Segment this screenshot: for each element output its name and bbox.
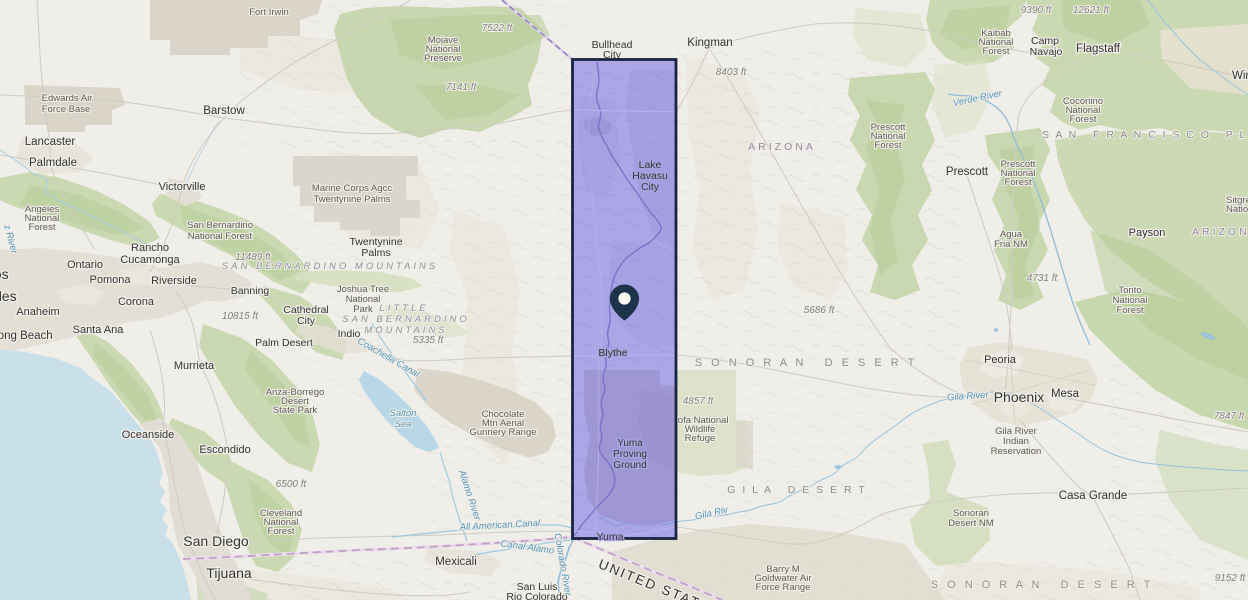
svg-text:Palms: Palms bbox=[361, 247, 390, 259]
svg-text:Refuge: Refuge bbox=[685, 433, 716, 444]
svg-text:Gunnery Range: Gunnery Range bbox=[469, 427, 536, 438]
svg-text:Barstow: Barstow bbox=[203, 105, 245, 117]
svg-text:Forest: Forest bbox=[268, 526, 295, 537]
svg-text:SAN BERNARDINO: SAN BERNARDINO bbox=[342, 314, 470, 325]
svg-text:Ground: Ground bbox=[613, 460, 646, 471]
svg-text:Long Beach: Long Beach bbox=[0, 330, 53, 342]
svg-text:Sea: Sea bbox=[395, 419, 412, 430]
svg-text:Forest: Forest bbox=[1117, 305, 1144, 316]
svg-text:Riverside: Riverside bbox=[151, 275, 197, 287]
svg-text:4857 ft: 4857 ft bbox=[683, 396, 715, 407]
svg-text:Cucamonga: Cucamonga bbox=[120, 254, 180, 266]
svg-text:12621 ft: 12621 ft bbox=[1073, 5, 1110, 16]
svg-text:Fria NM: Fria NM bbox=[994, 239, 1028, 250]
svg-text:7847 ft: 7847 ft bbox=[1214, 411, 1246, 422]
svg-text:Angeles: Angeles bbox=[0, 288, 17, 304]
svg-text:Edwards Air: Edwards Air bbox=[42, 93, 93, 104]
svg-text:Phoenix: Phoenix bbox=[994, 389, 1045, 405]
svg-text:SAN BERNARDINO MOUNTAINS: SAN BERNARDINO MOUNTAINS bbox=[222, 261, 438, 272]
svg-text:Mexicali: Mexicali bbox=[435, 556, 477, 568]
svg-text:ARIZONA: ARIZONA bbox=[748, 141, 816, 153]
svg-text:Casa Grande: Casa Grande bbox=[1059, 490, 1127, 502]
svg-text:Forest: Forest bbox=[983, 46, 1010, 57]
svg-text:Los: Los bbox=[0, 266, 9, 282]
svg-text:LITTLE: LITTLE bbox=[379, 303, 428, 314]
svg-text:Twentynine Palms: Twentynine Palms bbox=[313, 194, 390, 205]
svg-text:4731 ft: 4731 ft bbox=[1027, 273, 1059, 284]
svg-text:Ontario: Ontario bbox=[67, 259, 103, 271]
svg-text:City: City bbox=[641, 181, 660, 193]
svg-text:5686 ft: 5686 ft bbox=[804, 305, 836, 316]
svg-text:Forest: Forest bbox=[875, 140, 902, 151]
svg-text:Yuma: Yuma bbox=[617, 438, 643, 449]
svg-text:Mesa: Mesa bbox=[1051, 388, 1080, 400]
svg-text:Rancho: Rancho bbox=[131, 242, 169, 254]
svg-text:Fort Irwin: Fort Irwin bbox=[249, 7, 289, 18]
svg-text:Pomona: Pomona bbox=[90, 274, 132, 286]
svg-text:Victorville: Victorville bbox=[159, 181, 206, 193]
svg-text:ARIZONA: ARIZONA bbox=[1192, 226, 1248, 238]
svg-text:Flagstaff: Flagstaff bbox=[1076, 43, 1121, 55]
svg-text:9390 ft: 9390 ft bbox=[1021, 5, 1053, 16]
svg-text:Tijuana: Tijuana bbox=[206, 565, 252, 581]
svg-text:Force Base: Force Base bbox=[42, 104, 91, 115]
svg-text:Payson: Payson bbox=[1129, 227, 1166, 239]
svg-text:Preserve: Preserve bbox=[424, 53, 462, 64]
svg-text:Force Range: Force Range bbox=[756, 582, 811, 593]
svg-text:Palmdale: Palmdale bbox=[29, 157, 77, 169]
svg-text:S O N O R A N D E S E R T: S O N O R A N D E S E R T bbox=[931, 579, 1154, 591]
svg-text:Forest: Forest bbox=[29, 222, 56, 233]
svg-text:Lancaster: Lancaster bbox=[25, 136, 76, 148]
svg-text:City: City bbox=[297, 315, 316, 327]
svg-text:5335 ft: 5335 ft bbox=[413, 335, 445, 346]
svg-text:Santa Ana: Santa Ana bbox=[73, 324, 125, 336]
svg-text:Desert NM: Desert NM bbox=[948, 518, 993, 529]
svg-text:National Forest: National Forest bbox=[188, 231, 253, 242]
svg-text:Marine Corps Agcc: Marine Corps Agcc bbox=[312, 183, 393, 194]
svg-text:Forest: Forest bbox=[1005, 177, 1032, 188]
svg-text:Oceanside: Oceanside bbox=[122, 429, 175, 441]
svg-text:Salton: Salton bbox=[390, 408, 417, 419]
svg-text:S O N O R A N D E S E R T: S O N O R A N D E S E R T bbox=[695, 357, 918, 369]
svg-text:Rio Colorado: Rio Colorado bbox=[506, 591, 567, 600]
svg-text:S A N F R A N C I S C O P: S A N F R A N C I S C O P L A T bbox=[1042, 129, 1248, 141]
svg-text:Anaheim: Anaheim bbox=[16, 306, 59, 318]
svg-text:San Diego: San Diego bbox=[183, 533, 249, 549]
svg-text:Proving: Proving bbox=[613, 449, 647, 460]
svg-text:Nation: Nation bbox=[1226, 204, 1248, 215]
svg-text:7522 ft: 7522 ft bbox=[482, 23, 514, 34]
svg-text:Forest: Forest bbox=[1070, 114, 1097, 125]
svg-text:San Bernardino: San Bernardino bbox=[187, 220, 253, 231]
svg-text:Corona: Corona bbox=[118, 296, 155, 308]
svg-text:Yuma: Yuma bbox=[597, 531, 624, 543]
svg-text:6500 ft: 6500 ft bbox=[276, 479, 308, 490]
svg-text:8403 ft: 8403 ft bbox=[716, 67, 748, 78]
svg-text:Kingman: Kingman bbox=[687, 37, 732, 49]
svg-text:Blythe: Blythe bbox=[598, 347, 627, 359]
svg-text:Escondido: Escondido bbox=[199, 444, 250, 456]
svg-text:Banning: Banning bbox=[231, 285, 270, 297]
svg-text:Indio: Indio bbox=[338, 328, 361, 340]
svg-text:G I L A D E S E R T: G I L A D E S E R T bbox=[727, 484, 866, 496]
svg-text:Win: Win bbox=[1232, 70, 1248, 82]
svg-text:10815 ft: 10815 ft bbox=[222, 311, 259, 322]
svg-text:7141 ft: 7141 ft bbox=[446, 82, 478, 93]
svg-text:Murrieta: Murrieta bbox=[174, 360, 215, 372]
svg-text:Reservation: Reservation bbox=[991, 446, 1042, 457]
svg-text:Prescott: Prescott bbox=[946, 166, 989, 178]
svg-text:Peoria: Peoria bbox=[984, 354, 1017, 366]
svg-text:Navajo: Navajo bbox=[1030, 46, 1063, 58]
svg-text:Palm Desert: Palm Desert bbox=[255, 337, 313, 349]
svg-text:State Park: State Park bbox=[273, 405, 318, 416]
svg-text:9152 ft: 9152 ft bbox=[1215, 573, 1247, 584]
